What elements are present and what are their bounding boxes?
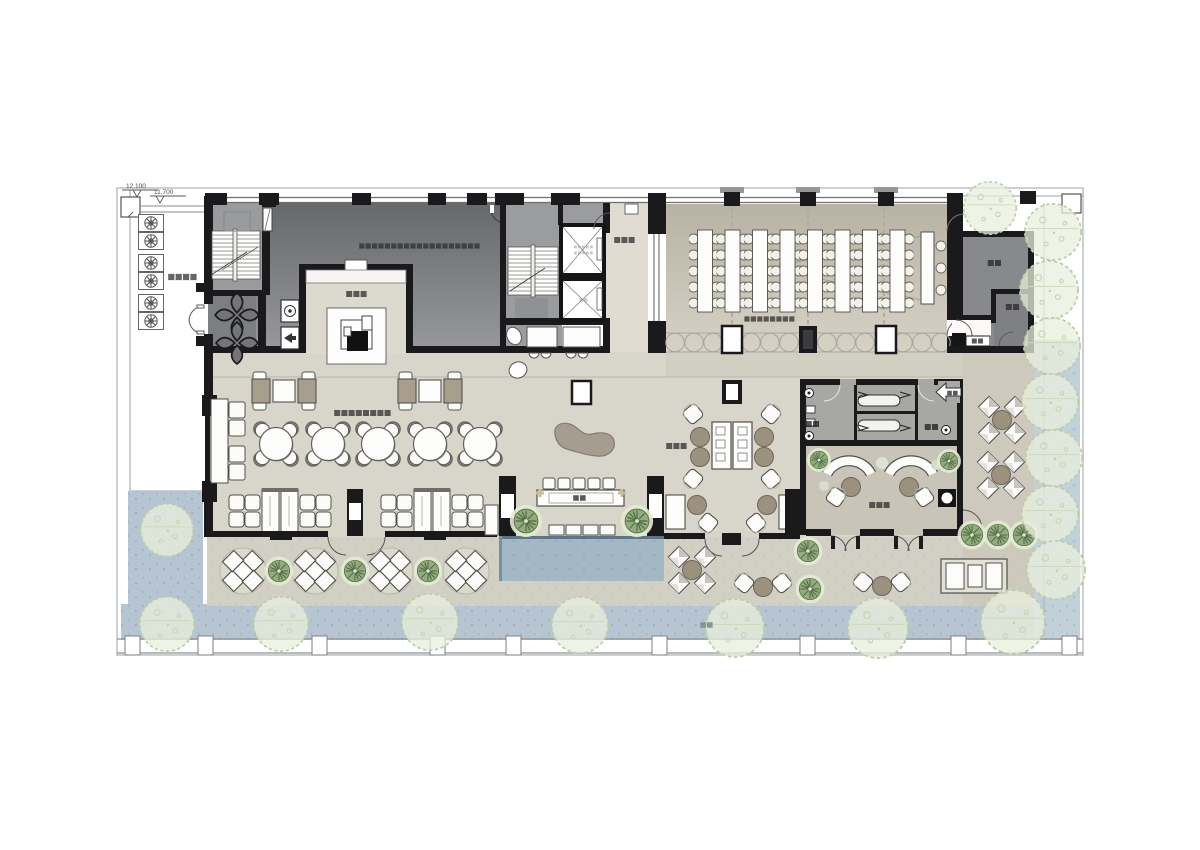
svg-text:12.100: 12.100 xyxy=(126,183,146,190)
svg-text:11.700: 11.700 xyxy=(154,189,174,196)
